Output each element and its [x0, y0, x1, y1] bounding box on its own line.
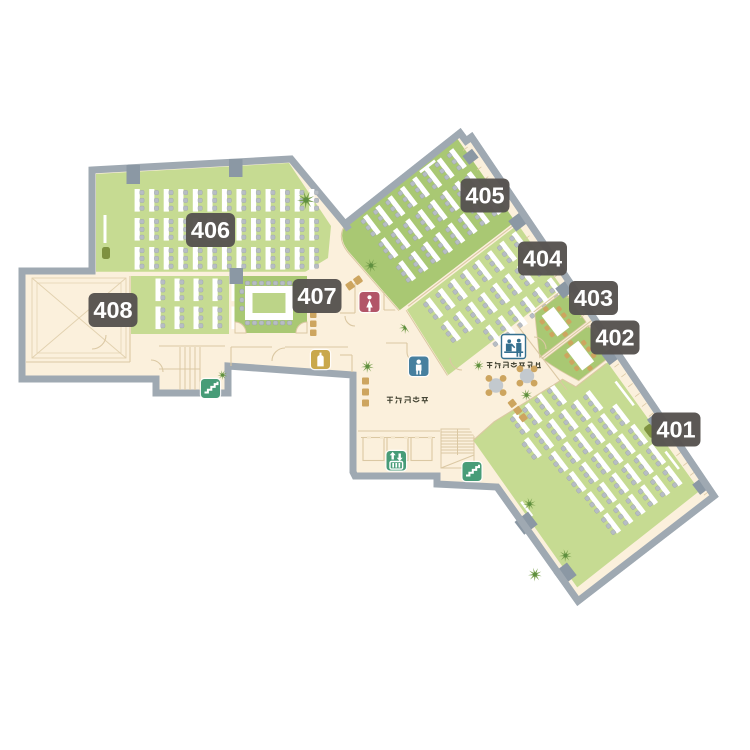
svg-text:403: 403 — [574, 285, 613, 311]
svg-text:408: 408 — [93, 297, 132, 323]
svg-text:407: 407 — [297, 283, 336, 309]
svg-text:402: 402 — [595, 325, 634, 351]
svg-text:404: 404 — [523, 246, 562, 272]
svg-text:401: 401 — [656, 417, 695, 443]
svg-text:406: 406 — [191, 217, 230, 243]
svg-text:405: 405 — [465, 183, 504, 209]
